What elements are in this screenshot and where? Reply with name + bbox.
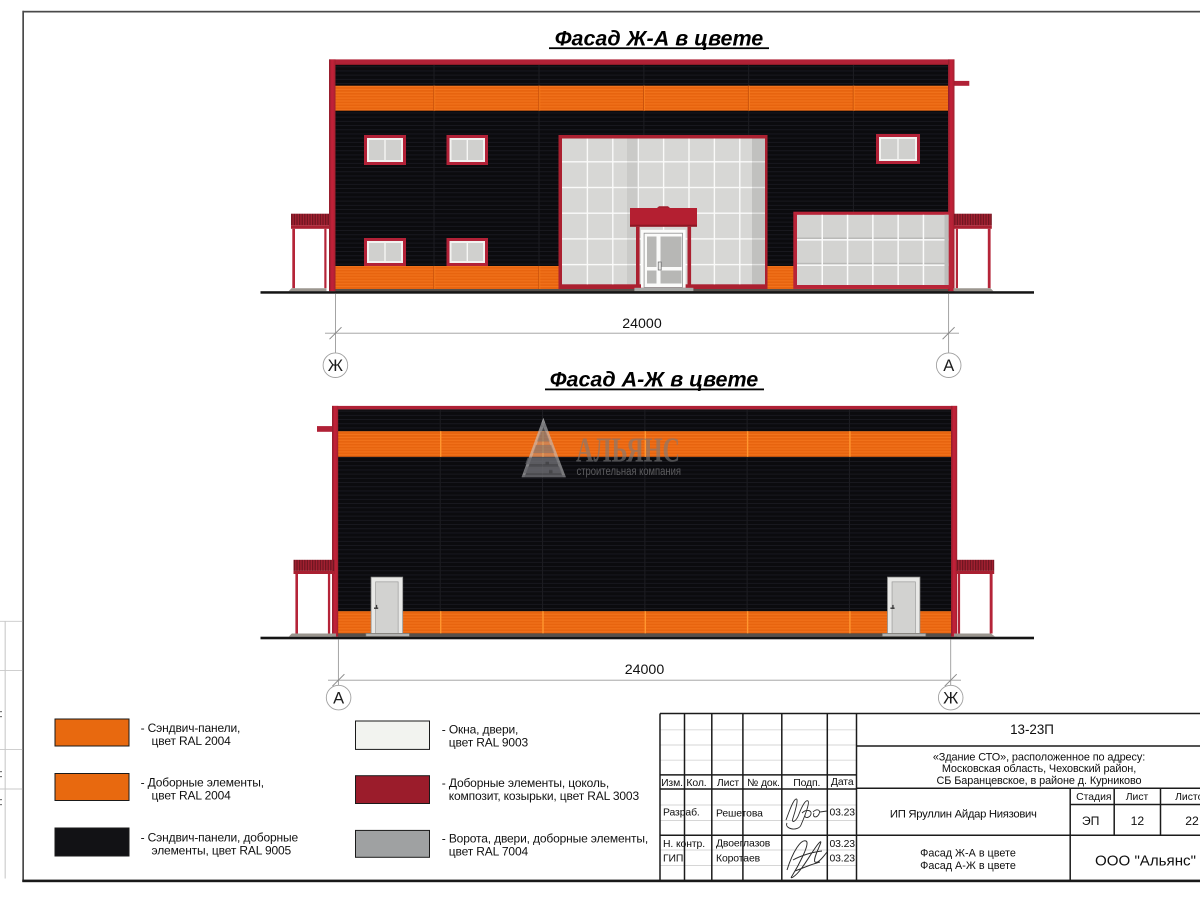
- svg-text:03.23: 03.23: [829, 839, 855, 850]
- svg-text:АЛЬЯНС: АЛЬЯНС: [576, 431, 680, 470]
- svg-text:ГИП: ГИП: [663, 853, 683, 864]
- svg-text:22: 22: [1185, 814, 1199, 828]
- svg-text:- Доборные элементы,: - Доборные элементы,: [141, 776, 264, 790]
- svg-text:Коротаев: Коротаев: [716, 853, 761, 864]
- svg-text:24000: 24000: [622, 316, 662, 332]
- svg-text:СБ Баранцевское, в районе д. К: СБ Баранцевское, в районе д. Курниково: [937, 775, 1142, 787]
- svg-text:А: А: [943, 357, 954, 375]
- svg-text:03.23: 03.23: [829, 807, 855, 818]
- svg-text:Н. контр.: Н. контр.: [663, 839, 705, 850]
- svg-text:цвет RAL 2004: цвет RAL 2004: [152, 734, 232, 748]
- svg-text:№ док.: № док.: [747, 778, 780, 789]
- svg-text:Подп.: Подп.: [793, 778, 820, 789]
- svg-text:ЭП: ЭП: [1082, 814, 1100, 828]
- svg-text:Разраб.: Разраб.: [663, 806, 700, 818]
- svg-text:Лист: Лист: [717, 778, 740, 789]
- svg-text:Двоеглазов: Двоеглазов: [716, 838, 771, 849]
- svg-text:Стадия: Стадия: [1076, 792, 1111, 803]
- svg-text:Ж: Ж: [328, 357, 344, 375]
- svg-text:Фасад Ж-А в цвете: Фасад Ж-А в цвете: [920, 847, 1016, 859]
- svg-text:строительная компания: строительная компания: [577, 466, 682, 478]
- svg-text:Ж: Ж: [943, 689, 959, 707]
- svg-text:03.23: 03.23: [829, 853, 855, 864]
- svg-text:цвет RAL 2004: цвет RAL 2004: [152, 789, 232, 803]
- svg-text:- Доборные элементы, цоколь,: - Доборные элементы, цоколь,: [442, 776, 609, 790]
- svg-text:Изм.: Изм.: [661, 778, 683, 789]
- svg-text:элементы, цвет RAL 9005: элементы, цвет RAL 9005: [152, 844, 292, 858]
- svg-text:А: А: [333, 689, 344, 707]
- svg-text:Фасад А-Ж в цвете: Фасад А-Ж в цвете: [550, 368, 759, 392]
- svg-text:Кол.: Кол.: [686, 778, 706, 789]
- svg-text:ООО "Альянс": ООО "Альянс": [1095, 853, 1196, 870]
- svg-text:цвет RAL 7004: цвет RAL 7004: [449, 845, 529, 859]
- svg-text:цвет RAL 9003: цвет RAL 9003: [449, 736, 529, 750]
- svg-text:- Сэндвич-панели, доборные: - Сэндвич-панели, доборные: [141, 831, 299, 845]
- svg-text:ИП Яруллин Айдар Ниязович: ИП Яруллин Айдар Ниязович: [890, 808, 1037, 820]
- svg-text:- Сэндвич-панели,: - Сэндвич-панели,: [141, 721, 241, 735]
- svg-text:24000: 24000: [625, 662, 665, 678]
- svg-text:Дата: Дата: [831, 777, 854, 788]
- svg-text:«Здание СТО», расположенное по: «Здание СТО», расположенное по адресу:: [933, 751, 1145, 763]
- svg-text:Решетова: Решетова: [716, 808, 763, 819]
- svg-text:Фасад А-Ж в цвете: Фасад А-Ж в цвете: [920, 860, 1016, 872]
- svg-text:Фасад Ж-А в цвете: Фасад Ж-А в цвете: [555, 27, 764, 51]
- svg-text:- Окна, двери,: - Окна, двери,: [442, 722, 518, 736]
- svg-text:13-23П: 13-23П: [1010, 722, 1054, 737]
- svg-text:Листов: Листов: [1175, 792, 1200, 803]
- svg-text:Лист: Лист: [1126, 792, 1149, 803]
- svg-text:композит, козырьки, цвет RAL 3: композит, козырьки, цвет RAL 3003: [449, 789, 640, 803]
- svg-text:12: 12: [1131, 814, 1145, 828]
- svg-text:Московская область, Чеховский: Московская область, Чеховский район,: [942, 763, 1136, 775]
- svg-text:- Ворота, двери, доборные элем: - Ворота, двери, доборные элементы,: [442, 832, 648, 846]
